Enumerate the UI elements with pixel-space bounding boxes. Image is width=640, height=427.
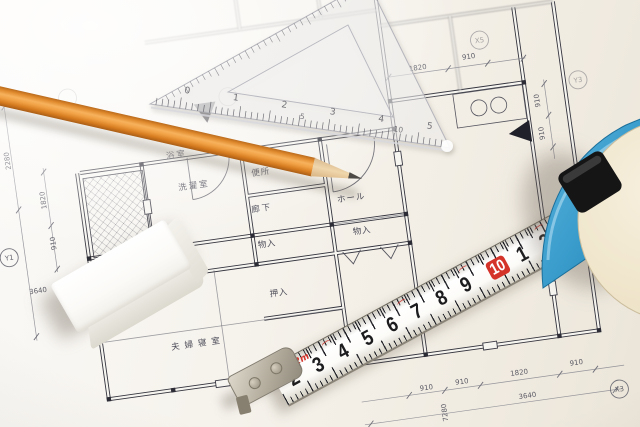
tape-measure-body [520, 55, 640, 345]
hook-rivet [268, 360, 284, 376]
tape-number: 8 [432, 286, 452, 312]
tape-number-red-box: 10 [484, 254, 511, 280]
tape-red-mark [321, 339, 332, 349]
tape-number: 9 [456, 272, 476, 298]
pencil-graphite-tip [348, 171, 363, 182]
tape-number: 7 [407, 299, 427, 325]
triangle-inner-scale-number: 10 [393, 124, 404, 134]
tape-number: 5 [358, 326, 378, 352]
photo-architectural-blueprint: 浴室便所洗濯室廊下ホール物入物入押入夫婦寝室228018209103640182… [0, 0, 640, 427]
tape-number: 4 [333, 339, 353, 365]
hook-rivet [247, 375, 263, 391]
tape-body-cream-shell [578, 118, 640, 322]
triangle-tip-highlight [441, 140, 453, 152]
tape-number: 6 [383, 312, 403, 338]
tape-red-mark [397, 298, 408, 308]
tape-number: 3 [309, 353, 329, 379]
